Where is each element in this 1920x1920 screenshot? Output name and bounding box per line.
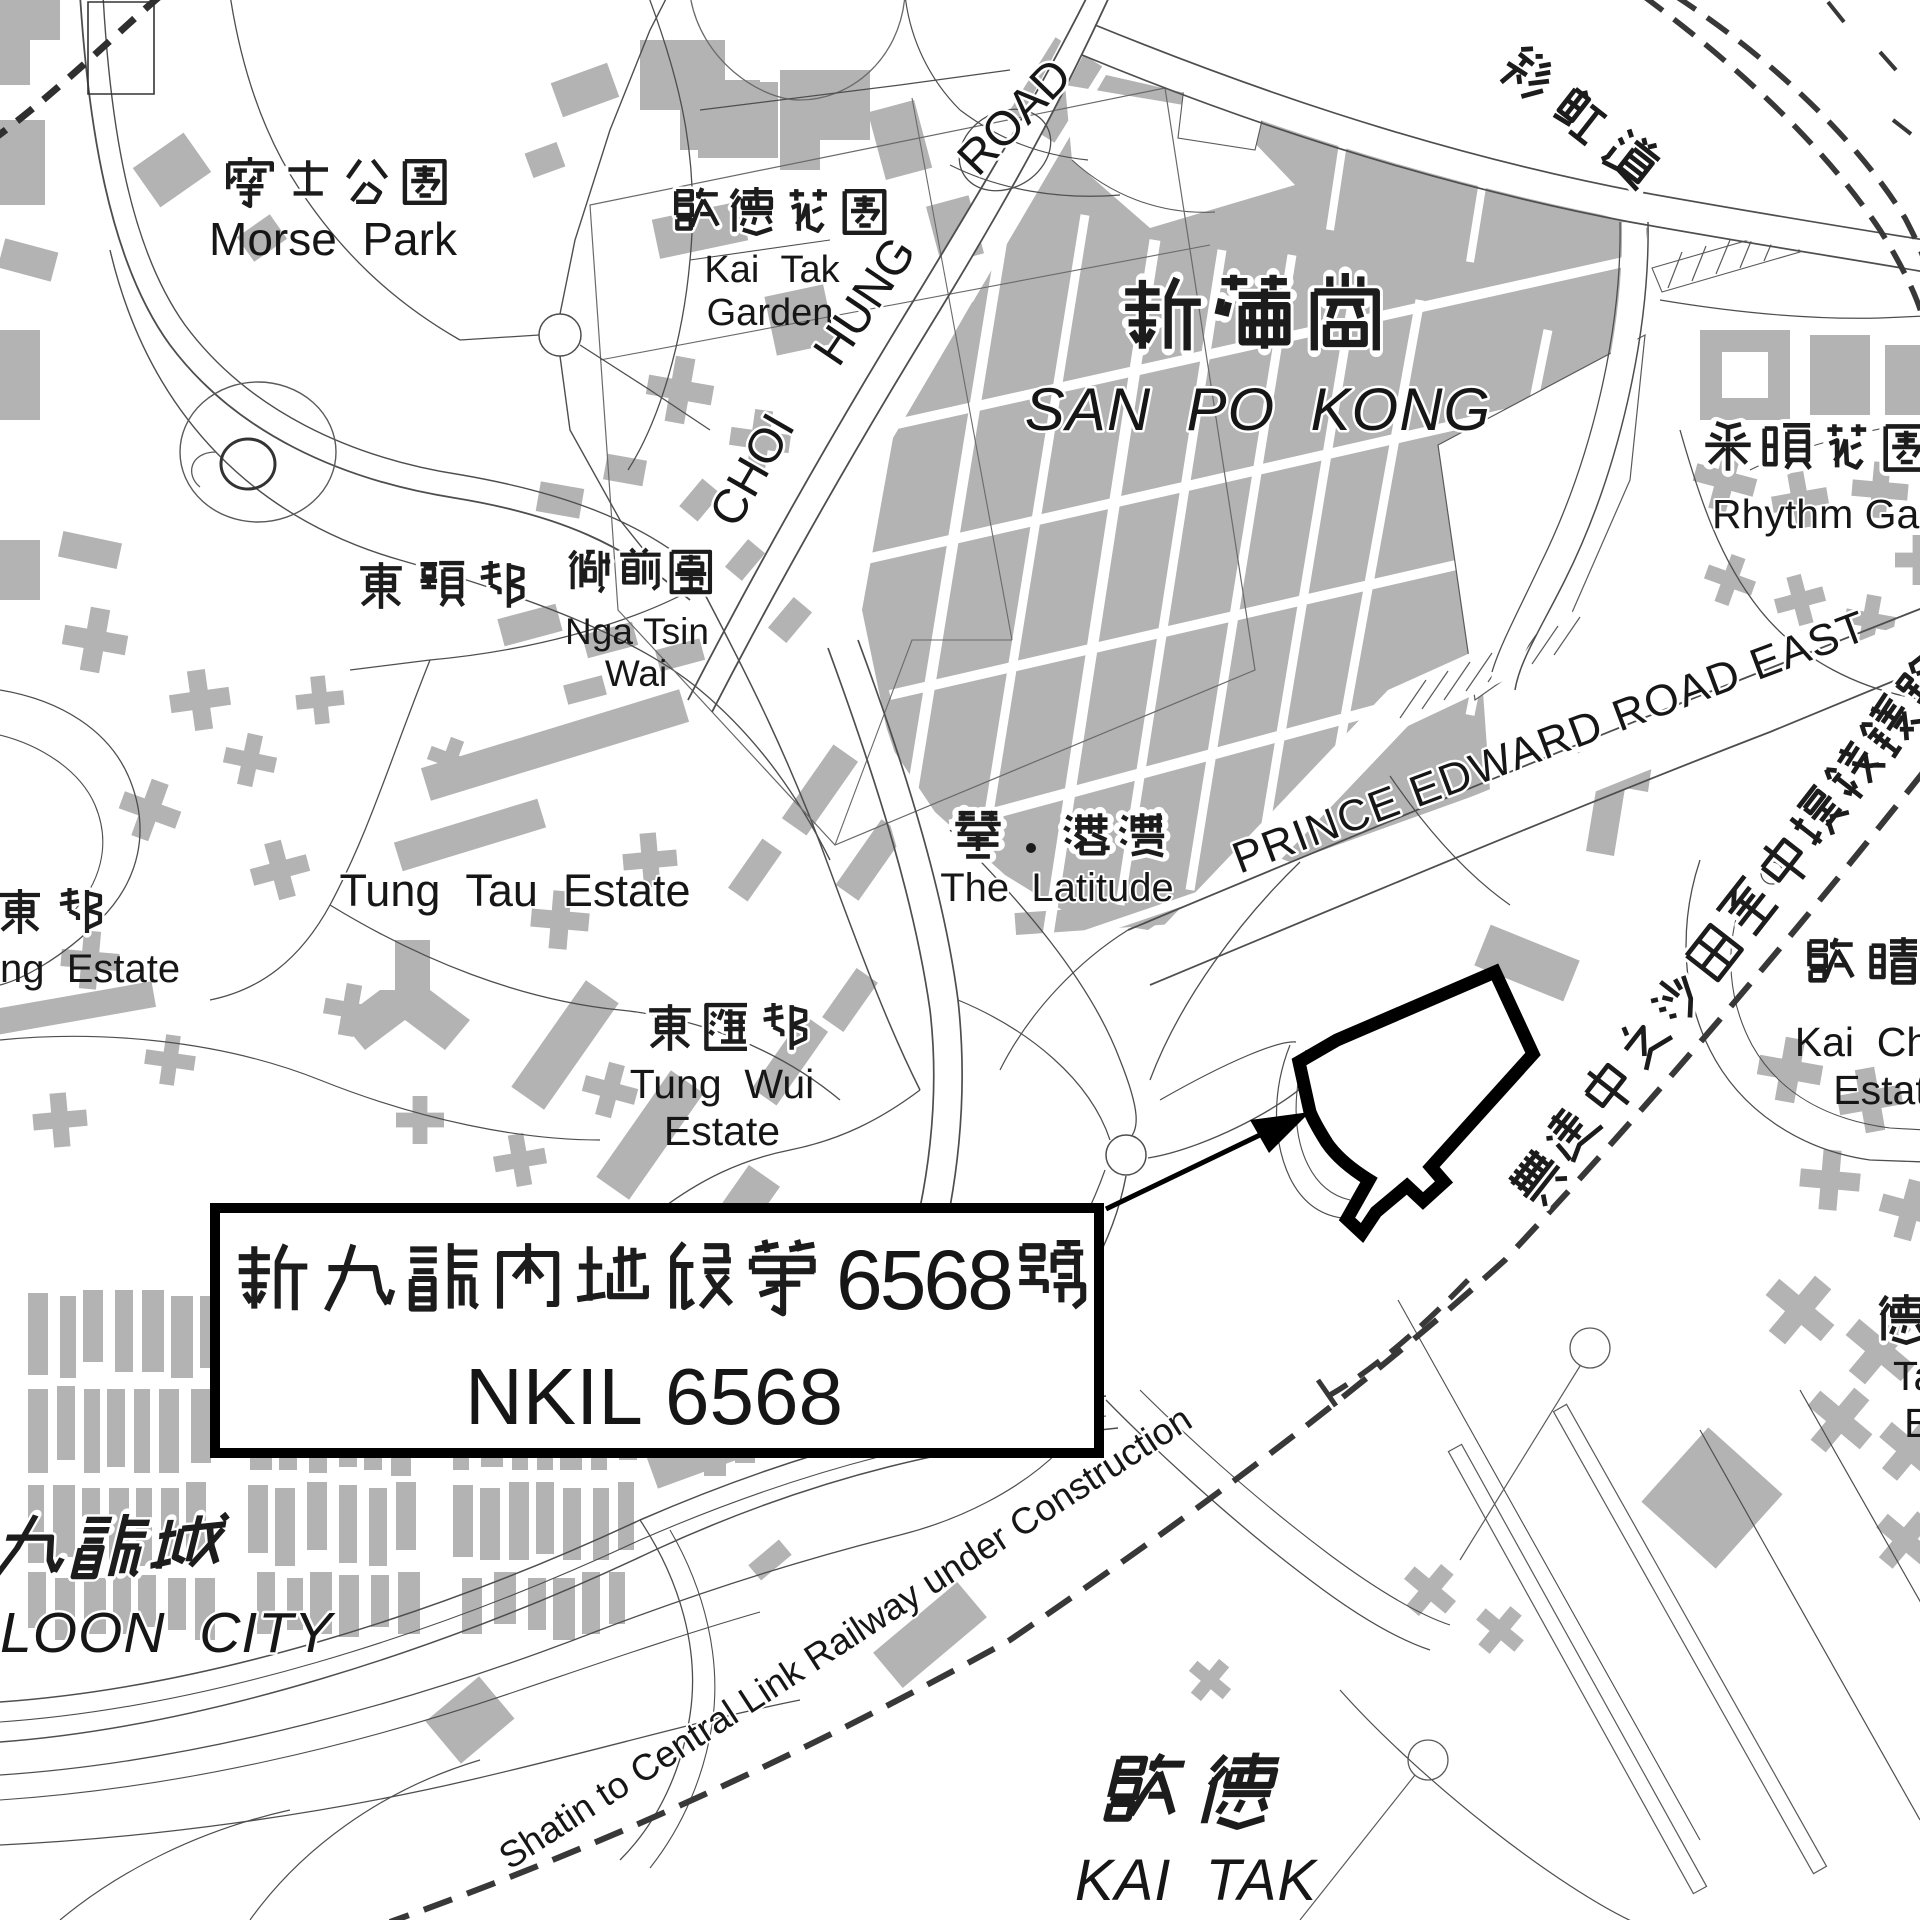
svg-text:ng Estate: ng Estate xyxy=(0,947,180,991)
svg-text:NKIL 6568: NKIL 6568 xyxy=(465,1352,843,1441)
svg-text:LOON CITY: LOON CITY xyxy=(0,1601,336,1665)
svg-text:Kai Tak: Kai Tak xyxy=(704,249,840,291)
svg-text:Kai Ch: Kai Ch xyxy=(1795,1019,1920,1065)
svg-text:E: E xyxy=(1904,1400,1920,1446)
svg-text:Estat: Estat xyxy=(1833,1067,1920,1113)
svg-text:KAI TAK: KAI TAK xyxy=(1075,1848,1319,1913)
svg-text:SAN PO KONG: SAN PO KONG xyxy=(1025,376,1491,443)
svg-text:6568: 6568 xyxy=(836,1233,1011,1327)
svg-text:Tung Tau Estate: Tung Tau Estate xyxy=(339,865,690,916)
svg-text:The Latitude: The Latitude xyxy=(940,866,1174,910)
svg-text:Ta: Ta xyxy=(1893,1353,1920,1399)
svg-text:Morse Park: Morse Park xyxy=(209,213,458,265)
svg-text:Rhythm Gard: Rhythm Gard xyxy=(1712,491,1920,537)
svg-text:Estate: Estate xyxy=(664,1108,780,1154)
svg-text:Tung Wui: Tung Wui xyxy=(630,1061,815,1107)
svg-text:Wai: Wai xyxy=(605,653,667,694)
svg-text:Nga Tsin: Nga Tsin xyxy=(565,611,709,652)
